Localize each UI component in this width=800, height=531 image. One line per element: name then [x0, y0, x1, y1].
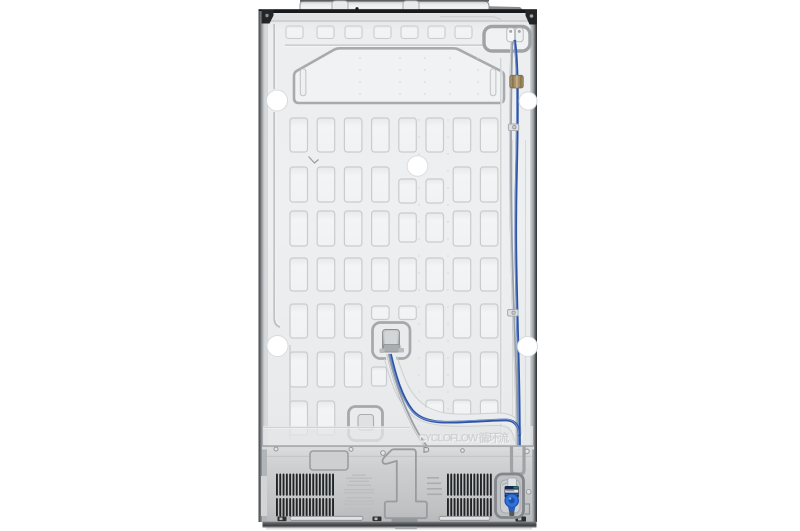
- svg-text:CYCLOFLOW 循环流: CYCLOFLOW 循环流: [418, 431, 509, 445]
